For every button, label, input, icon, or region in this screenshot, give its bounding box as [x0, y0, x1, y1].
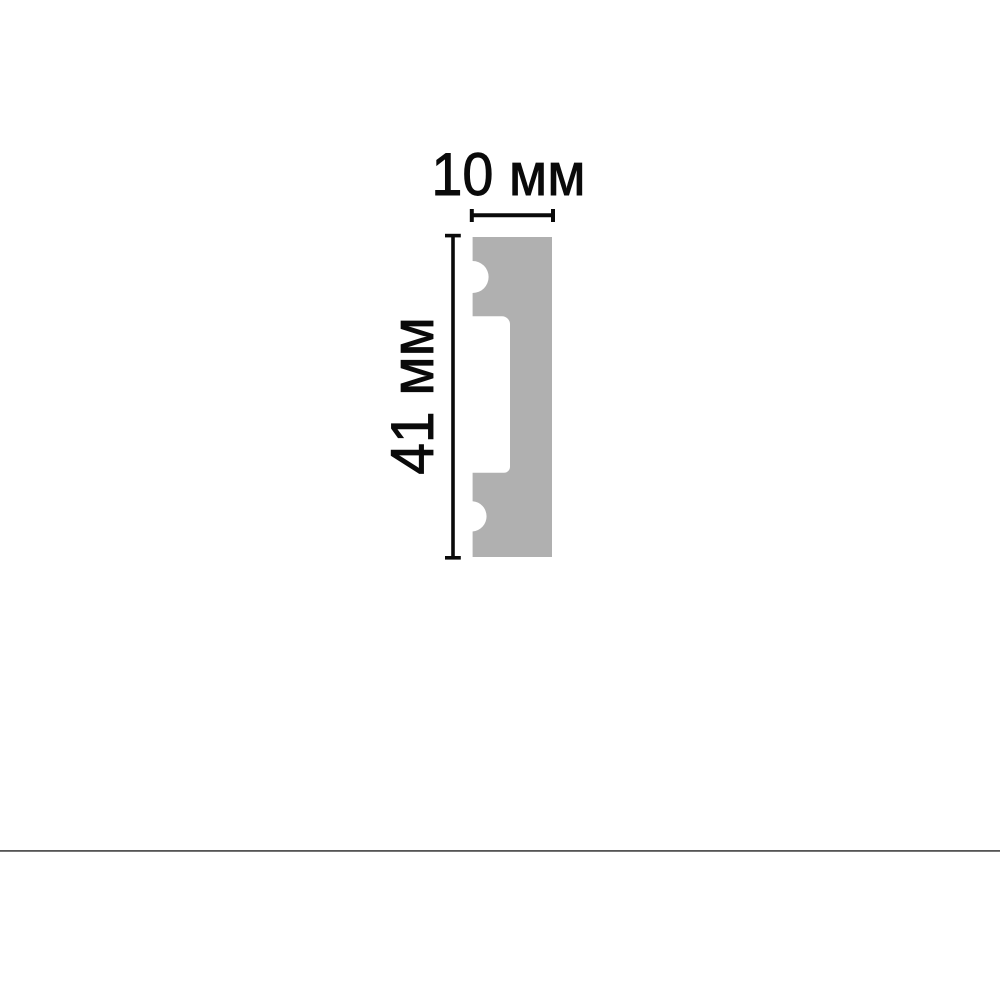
svg-text:41 мм: 41 мм — [380, 317, 447, 475]
svg-text:10 мм: 10 мм — [431, 142, 585, 208]
